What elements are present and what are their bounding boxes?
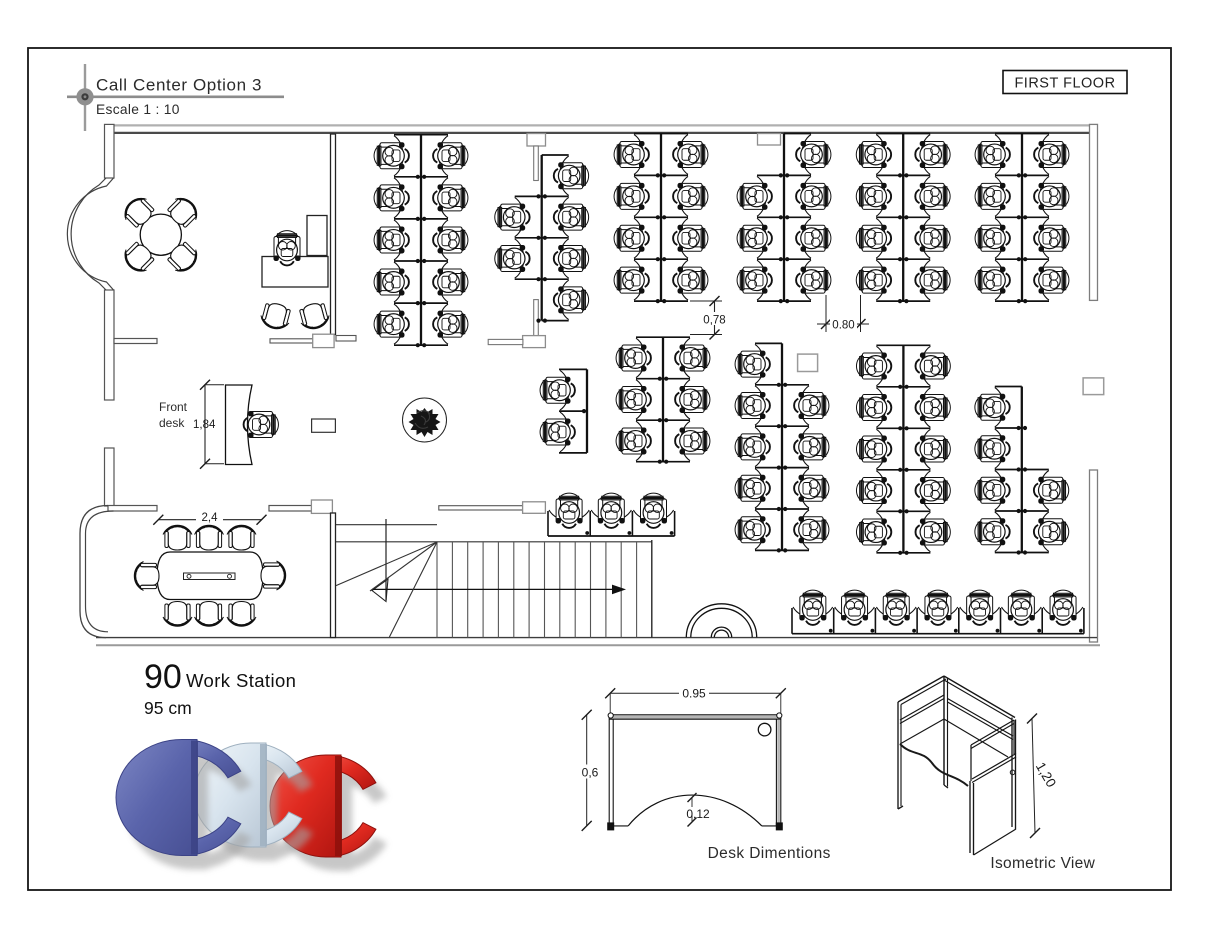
svg-text:95 cm: 95 cm [144, 698, 192, 718]
svg-text:Call Center Option 3: Call Center Option 3 [96, 76, 262, 95]
svg-text:0.80: 0.80 [832, 320, 854, 332]
svg-text:0,12: 0,12 [686, 807, 710, 821]
svg-text:1,84: 1,84 [193, 419, 216, 431]
svg-text:0,78: 0,78 [703, 315, 725, 327]
svg-text:0,6: 0,6 [582, 766, 599, 780]
svg-text:Work Station: Work Station [186, 670, 296, 691]
svg-text:2,4: 2,4 [202, 512, 219, 524]
svg-text:0.95: 0.95 [682, 687, 706, 701]
svg-text:Front: Front [159, 400, 188, 414]
svg-text:Isometric View: Isometric View [990, 855, 1095, 872]
svg-text:Escale 1 : 10: Escale 1 : 10 [96, 102, 180, 117]
svg-text:FIRST FLOOR: FIRST FLOOR [1014, 76, 1115, 92]
svg-text:Desk Dimentions: Desk Dimentions [708, 845, 831, 862]
svg-text:90: 90 [144, 658, 182, 696]
svg-text:desk: desk [159, 416, 185, 430]
